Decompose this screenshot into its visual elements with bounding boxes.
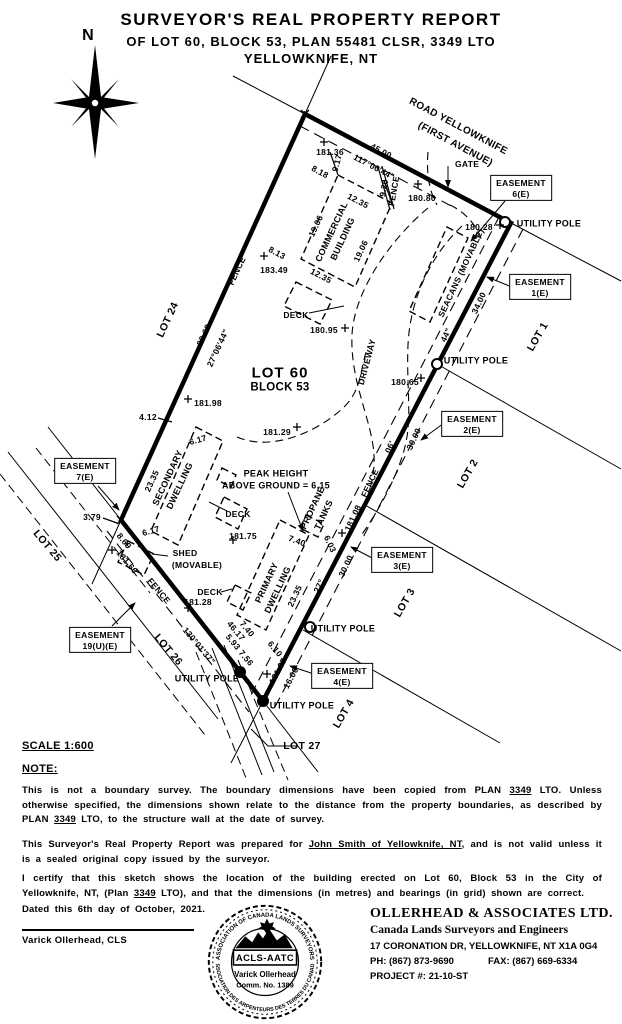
easement-6e-box: EASEMENT 6(E) bbox=[490, 175, 552, 201]
signature-line bbox=[22, 929, 194, 931]
easement-19e-box: EASEMENT 19(U)(E) bbox=[69, 627, 131, 653]
page-subtitle: OF LOT 60, BLOCK 53, PLAN 55481 CLSR, 33… bbox=[0, 34, 622, 49]
easement-2e-box: EASEMENT 2(E) bbox=[441, 411, 503, 437]
subject-block-label: BLOCK 53 bbox=[250, 382, 309, 394]
company-name: OLLERHEAD & ASSOCIATES LTD. bbox=[370, 906, 613, 922]
easement-6e-id: 6(E) bbox=[512, 189, 529, 199]
utility-pole-label-4: UTILITY POLE bbox=[175, 675, 239, 684]
shed-label: SHED bbox=[173, 549, 198, 558]
property-boundary bbox=[121, 114, 511, 701]
easement-7e-title: EASEMENT bbox=[60, 461, 110, 471]
easement-4e-box: EASEMENT 4(E) bbox=[311, 663, 373, 689]
utility-pole-label-1: UTILITY POLE bbox=[517, 220, 581, 229]
lot-27-label: LOT 27 bbox=[283, 741, 320, 752]
note-paragraph-1: This is not a boundary survey. The bound… bbox=[22, 784, 602, 828]
easement-4e-id: 4(E) bbox=[333, 677, 350, 687]
easement-3e-box: EASEMENT 3(E) bbox=[371, 547, 433, 573]
easement-3e-title: EASEMENT bbox=[377, 550, 427, 560]
note1-text: This is not a boundary survey. The bound… bbox=[22, 785, 510, 796]
surveyor-seal: ASSOCIATION OF CANADA LANDS SURVEYORS AS… bbox=[195, 893, 335, 1024]
deck-label-c: DECK bbox=[197, 588, 222, 597]
easement-2e-id: 2(E) bbox=[463, 425, 480, 435]
easement-7e-box: EASEMENT 7(E) bbox=[54, 458, 116, 484]
note-heading: NOTE: bbox=[22, 764, 58, 775]
elevation-180-95: 180.95 bbox=[310, 326, 338, 335]
dim-4-12: 4.12 bbox=[139, 413, 157, 422]
gate-label: GATE bbox=[455, 160, 479, 169]
signatory-name: Varick Ollerhead, CLS bbox=[22, 936, 127, 946]
easement-1e-title: EASEMENT bbox=[515, 277, 565, 287]
easement-7e-id: 7(E) bbox=[76, 472, 93, 482]
note3-plan-ref: 3349 bbox=[134, 888, 156, 899]
peak-height-label-2: ABOVE GROUND = 6.15 bbox=[222, 482, 330, 491]
page-location: YELLOWKNIFE, NT bbox=[0, 51, 622, 66]
elevation-181-29: 181.29 bbox=[263, 428, 291, 437]
survey-report-sheet: N SURVEYOR'S REAL PROPERTY REPORT OF LOT… bbox=[0, 0, 622, 1024]
note1-text-3: LTO, to the structure wall at the date o… bbox=[76, 814, 324, 825]
note1-plan-ref-2: 3349 bbox=[54, 814, 76, 825]
subject-lot-label: LOT 60 bbox=[252, 366, 309, 381]
utility-pole-label-5: UTILITY POLE bbox=[270, 702, 334, 711]
easement-19e-id: 19(U)(E) bbox=[82, 641, 117, 651]
note2-text: This Surveyor's Real Property Report was… bbox=[22, 839, 309, 850]
lower-left-lot-lines bbox=[0, 448, 218, 735]
note2-client-name: John Smith of Yellowknife, NT bbox=[309, 839, 462, 850]
elevation-181-28: 181.28 bbox=[184, 598, 212, 607]
seal-logo-text: ACLS-AATC bbox=[236, 953, 294, 963]
elevation-183-49: 183.49 bbox=[260, 266, 288, 275]
easement-2e-title: EASEMENT bbox=[447, 414, 497, 424]
easement-6e-title: EASEMENT bbox=[496, 178, 546, 188]
elevation-181-75: 181.75 bbox=[229, 532, 257, 541]
page-title: SURVEYOR'S REAL PROPERTY REPORT bbox=[0, 10, 622, 30]
company-fax: FAX: (867) 669-6334 bbox=[488, 956, 577, 967]
seal-commissioner-name: Varick Ollerhead bbox=[234, 970, 296, 979]
utility-pole-label-2: UTILITY POLE bbox=[444, 357, 508, 366]
note1-plan-ref: 3349 bbox=[510, 785, 532, 796]
elevation-180-80: 180.80 bbox=[408, 194, 436, 203]
easement-1e-id: 1(E) bbox=[531, 288, 548, 298]
deck-label-b: DECK bbox=[225, 510, 250, 519]
note-paragraph-2: This Surveyor's Real Property Report was… bbox=[22, 838, 602, 867]
peak-height-label: PEAK HEIGHT bbox=[244, 470, 309, 479]
leader-lines bbox=[98, 166, 512, 746]
primary-deck-outline bbox=[227, 585, 251, 610]
easement-3e-id: 3(E) bbox=[393, 561, 410, 571]
dim-3-79: 3.79 bbox=[83, 513, 101, 522]
company-phone: PH: (867) 873-9690 bbox=[370, 956, 454, 967]
company-address: 17 CORONATION DR, YELLOWKNIFE, NT X1A 0G… bbox=[370, 941, 597, 952]
shed-label-2: (MOVABLE) bbox=[172, 561, 222, 570]
company-subtitle: Canada Lands Surveyors and Engineers bbox=[370, 924, 568, 936]
elevation-181-98: 181.98 bbox=[194, 399, 222, 408]
utility-pole-label-3: UTILITY POLE bbox=[311, 625, 375, 634]
easement-19e-title: EASEMENT bbox=[75, 630, 125, 640]
easement-1e-box: EASEMENT 1(E) bbox=[509, 274, 571, 300]
scale-label: SCALE 1:600 bbox=[22, 741, 94, 752]
seal-commission-number: Comm. No. 1389 bbox=[236, 981, 293, 990]
company-project-number: PROJECT #: 21-10-ST bbox=[370, 971, 468, 982]
deck-label-a: DECK bbox=[283, 311, 308, 320]
easement-4e-title: EASEMENT bbox=[317, 666, 367, 676]
elevation-180-65: 180.65 bbox=[391, 378, 419, 387]
